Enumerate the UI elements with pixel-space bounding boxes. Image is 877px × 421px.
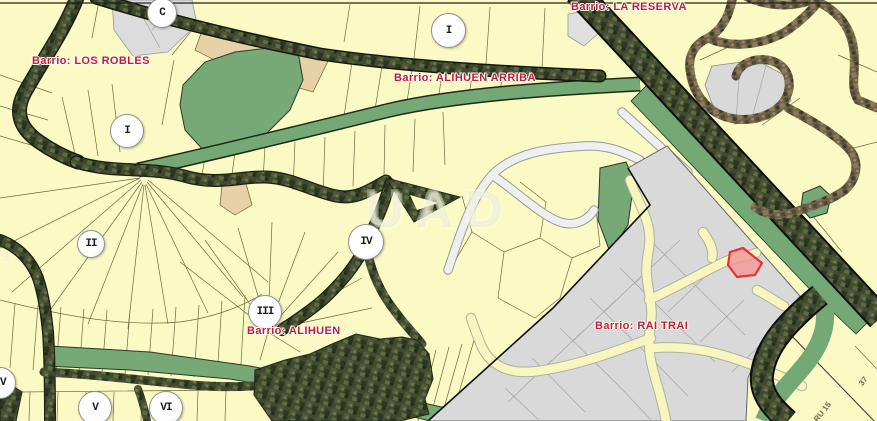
zone-marker-i-left[interactable]: I [110, 114, 144, 148]
barrio-label-la-reserva: Barrio: LA RESERVA [571, 1, 687, 13]
zone-marker-ii[interactable]: II [77, 230, 105, 258]
barrio-label-rai-trai: Barrio: RAI TRAI [595, 320, 688, 332]
barrio-label-alihuen-arriba: Barrio: ALIHUEN ARRIBA [394, 72, 536, 84]
map-viewport[interactable]: Barrio: LOS ROBLES Barrio: ALIHUEN ARRIB… [0, 0, 877, 421]
zone-marker-iii[interactable]: III [248, 295, 282, 329]
zone-marker-iv[interactable]: IV [348, 224, 384, 260]
road-letter-s: S [1, 250, 9, 264]
zone-marker-vi[interactable]: VI [149, 391, 183, 421]
zone-marker-v[interactable]: V [78, 391, 112, 421]
zone-marker-i-top[interactable]: I [431, 13, 466, 48]
barrio-label-alihuen: Barrio: ALIHUEN [247, 325, 341, 337]
barrio-label-los-robles: Barrio: LOS ROBLES [32, 55, 150, 67]
